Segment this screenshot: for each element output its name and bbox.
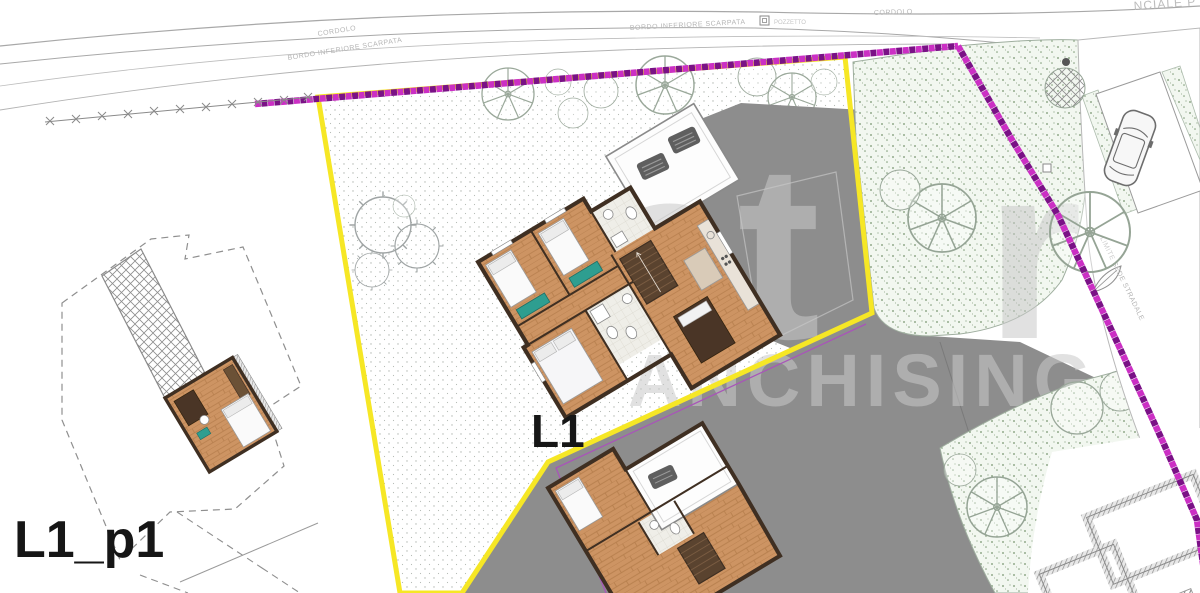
site-plan-canvas: CORDOLO CORDOLO BORDO INFERIORE SCARPATA…	[0, 0, 1200, 593]
slope-label-right: BORDO INFERIORE SCARPATA	[630, 19, 746, 32]
tree-icon	[1045, 68, 1085, 108]
tree-icon	[1051, 382, 1103, 434]
road-name-partial: NCIALE P	[1133, 0, 1197, 13]
site-plan-drawing: CORDOLO CORDOLO BORDO INFERIORE SCARPATA…	[0, 0, 1200, 593]
tree-icon	[482, 68, 534, 120]
main-unit-label: L1	[531, 405, 585, 457]
tree-icon	[636, 56, 694, 114]
tree-icon	[880, 170, 920, 210]
manhole-symbol	[1043, 164, 1051, 172]
slope-label-left: BORDO INFERIORE SCARPATA	[287, 37, 403, 62]
manhole-label: POZZETTO	[774, 20, 806, 26]
tree-icon	[811, 69, 837, 95]
pole-icon	[1062, 58, 1070, 66]
building-shell	[1026, 428, 1200, 593]
bush-icon	[393, 195, 415, 217]
tree-icon	[1050, 192, 1130, 272]
tree-icon	[558, 98, 588, 128]
tree-icon	[967, 477, 1027, 537]
fence-line	[45, 93, 312, 125]
tree-icon	[944, 454, 976, 486]
manhole-symbol	[760, 16, 769, 25]
curb-label-right: CORDOLO	[874, 9, 913, 17]
secondary-unit-label: L1_p1	[14, 511, 164, 569]
